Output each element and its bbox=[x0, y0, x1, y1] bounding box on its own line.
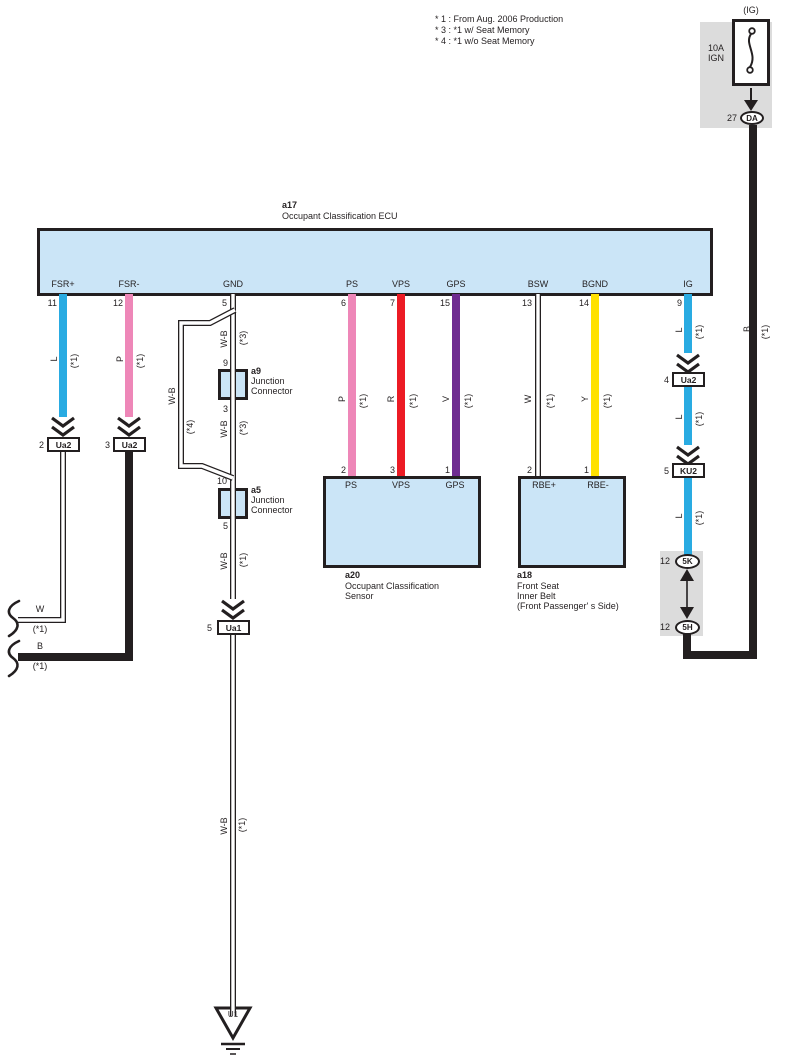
a20-pin-vps: VPS bbox=[392, 480, 410, 490]
double-arrow-icon bbox=[680, 569, 694, 619]
bgnd-note-label: (*1) bbox=[602, 394, 612, 409]
a18-pin-rbeplus: RBE+ bbox=[532, 480, 556, 490]
fuse-icon bbox=[747, 28, 755, 73]
gnd-bypass-color-label: W-B bbox=[167, 387, 177, 404]
ig-seg1-note-label: (*1) bbox=[694, 325, 704, 340]
a20-name-1: Occupant Classification bbox=[345, 581, 439, 591]
a9-label-1: Junction bbox=[251, 376, 285, 386]
fuse-rating-label: 10A bbox=[708, 43, 724, 53]
ecu-pin-ps: PS bbox=[346, 279, 358, 289]
a20-pin-num-2: 2 bbox=[324, 465, 346, 475]
a18-id: a18 bbox=[517, 570, 532, 580]
a18-name-3: (Front Passenger' s Side) bbox=[517, 601, 619, 611]
gnd-seg2-color-label: W-B bbox=[219, 420, 229, 437]
gnd-seg1-note-label: (*3) bbox=[238, 331, 248, 346]
fsr-plus-note-label: (*1) bbox=[69, 354, 79, 369]
arrow-down-icon bbox=[744, 88, 758, 111]
a20-pin-ps: PS bbox=[345, 480, 357, 490]
a20-id: a20 bbox=[345, 570, 360, 580]
note-1: * 1 : From Aug. 2006 Production bbox=[435, 14, 563, 24]
gnd-seg4-color-label: W-B bbox=[219, 817, 229, 834]
ecu-pin-fsrplus: FSR+ bbox=[51, 279, 74, 289]
a9-id: a9 bbox=[251, 366, 261, 376]
ig-seg3-color-label: L bbox=[674, 513, 684, 518]
a18-pin-num-2: 2 bbox=[510, 465, 532, 475]
gnd-seg4-note-label: (*1) bbox=[237, 818, 247, 833]
gnd-seg3-color-label: W-B bbox=[219, 552, 229, 569]
da-pin-number: 27 bbox=[715, 113, 737, 123]
ua2-2-pin-number: 2 bbox=[22, 440, 44, 450]
ecu-pin-ig: IG bbox=[683, 279, 693, 289]
ecu-pin-num-13: 13 bbox=[510, 298, 532, 308]
fsr-minus-note-label: (*1) bbox=[135, 354, 145, 369]
a18-name-1: Front Seat bbox=[517, 581, 559, 591]
bsw-note-label: (*1) bbox=[545, 394, 555, 409]
gnd-seg2-note-label: (*3) bbox=[238, 421, 248, 436]
ecu-pin-num-6: 6 bbox=[324, 298, 346, 308]
ecu-name: Occupant Classification ECU bbox=[282, 211, 398, 221]
a5-label-1: Junction bbox=[251, 495, 285, 505]
continuation-icons bbox=[9, 601, 19, 676]
vps-color-label: R bbox=[386, 396, 396, 403]
a20-pin-num-1: 1 bbox=[428, 465, 450, 475]
bgnd-color-label: Y bbox=[580, 396, 590, 402]
a5-pin-bottom: 5 bbox=[206, 521, 228, 531]
fuse-name-label: IGN bbox=[708, 53, 724, 63]
ps-color-label: P bbox=[337, 396, 347, 402]
b-right-color-label: B bbox=[742, 326, 752, 332]
ecu-pin-num-5: 5 bbox=[205, 298, 227, 308]
ecu-pin-fsrminus: FSR- bbox=[119, 279, 140, 289]
ecu-pin-num-15: 15 bbox=[428, 298, 450, 308]
b-right-note-label: (*1) bbox=[760, 325, 770, 340]
ecu-pin-gps: GPS bbox=[446, 279, 465, 289]
ecu-pin-num-11: 11 bbox=[35, 298, 57, 308]
ua2-4-pin-number: 4 bbox=[647, 375, 669, 385]
a20-pin-gps: GPS bbox=[445, 480, 464, 490]
ground-id: U1 bbox=[228, 1010, 238, 1020]
gnd-seg1-color-label: W-B bbox=[219, 330, 229, 347]
c5k-pin-number: 12 bbox=[648, 556, 670, 566]
b-cont-note-label: (*1) bbox=[33, 661, 48, 671]
a20-name-2: Sensor bbox=[345, 591, 374, 601]
a18-name-2: Inner Belt bbox=[517, 591, 556, 601]
a5-pin-top: 10 bbox=[205, 476, 227, 486]
ecu-pin-num-14: 14 bbox=[567, 298, 589, 308]
ig-seg1-color-label: L bbox=[674, 327, 684, 332]
connector-ua2-3: Ua2 bbox=[113, 437, 146, 452]
connector-ku2: KU2 bbox=[672, 463, 705, 478]
connector-ua2-4: Ua2 bbox=[672, 372, 705, 387]
a9-label-2: Connector bbox=[251, 386, 293, 396]
gnd-bypass-note-label: (*4) bbox=[185, 420, 195, 435]
a18-pin-num-1: 1 bbox=[567, 465, 589, 475]
w-cont-note-label: (*1) bbox=[33, 624, 48, 634]
gnd-seg3-note-label: (*1) bbox=[238, 553, 248, 568]
ecu-id: a17 bbox=[282, 200, 297, 210]
ps-note-label: (*1) bbox=[358, 394, 368, 409]
ua2-3-pin-number: 3 bbox=[88, 440, 110, 450]
ig-seg2-note-label: (*1) bbox=[694, 412, 704, 427]
ecu-pin-num-7: 7 bbox=[373, 298, 395, 308]
wiring-diagram: * 1 : From Aug. 2006 Production * 3 : *1… bbox=[0, 0, 788, 1062]
ig-seg2-color-label: L bbox=[674, 414, 684, 419]
b-wire-right bbox=[687, 125, 753, 655]
ecu-pin-num-12: 12 bbox=[101, 298, 123, 308]
gps-note-label: (*1) bbox=[463, 394, 473, 409]
ecu-pin-bsw: BSW bbox=[528, 279, 549, 289]
c5h-pin-number: 12 bbox=[648, 622, 670, 632]
a20-pin-num-3: 3 bbox=[373, 465, 395, 475]
connector-5h: 5H bbox=[675, 620, 700, 635]
gps-color-label: V bbox=[441, 396, 451, 402]
connector-5k: 5K bbox=[675, 554, 700, 569]
ecu-pin-gnd: GND bbox=[223, 279, 243, 289]
ecu-pin-vps: VPS bbox=[392, 279, 410, 289]
note-2: * 3 : *1 w/ Seat Memory bbox=[435, 25, 530, 35]
a18-pin-rbeminus: RBE- bbox=[587, 480, 609, 490]
ig-seg3-note-label: (*1) bbox=[694, 511, 704, 526]
b-cont-color-label: B bbox=[37, 641, 43, 651]
fsr-minus-color-label: P bbox=[115, 356, 125, 362]
fsr-plus-color-label: L bbox=[49, 356, 59, 361]
a9-pin-top: 9 bbox=[206, 358, 228, 368]
vps-note-label: (*1) bbox=[408, 394, 418, 409]
ua1-pin-number: 5 bbox=[190, 623, 212, 633]
w-cont-color-label: W bbox=[36, 604, 45, 614]
connector-da: DA bbox=[740, 111, 764, 125]
a9-pin-bottom: 3 bbox=[206, 404, 228, 414]
power-circuit-label: (IG) bbox=[743, 5, 759, 15]
a5-label-2: Connector bbox=[251, 505, 293, 515]
connector-ua2-2: Ua2 bbox=[47, 437, 80, 452]
wire-layer bbox=[0, 0, 788, 1062]
note-3: * 4 : *1 w/o Seat Memory bbox=[435, 36, 535, 46]
bsw-color-label: W bbox=[523, 395, 533, 404]
ecu-pin-bgnd: BGND bbox=[582, 279, 608, 289]
connector-ua1: Ua1 bbox=[217, 620, 250, 635]
ku2-pin-number: 5 bbox=[647, 466, 669, 476]
ecu-pin-num-9: 9 bbox=[660, 298, 682, 308]
a5-id: a5 bbox=[251, 485, 261, 495]
w-wire-left bbox=[18, 452, 63, 620]
